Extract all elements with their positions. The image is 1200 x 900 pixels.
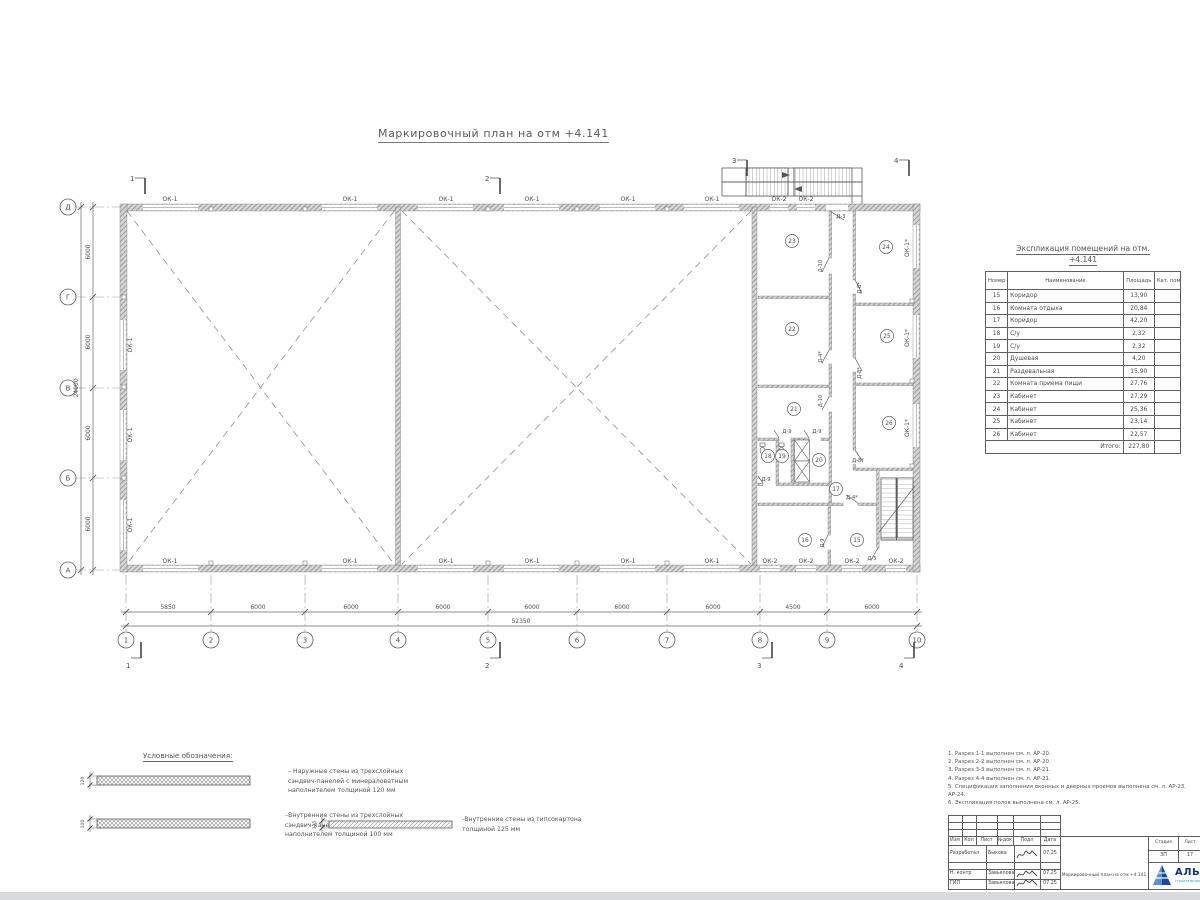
dim-label: 6000 xyxy=(85,244,92,259)
company-brand-name: АЛЬЯНС xyxy=(1175,867,1200,878)
tb-col-header: Лист xyxy=(976,838,997,843)
explication-table: Экспликация помещений на отм. +4.141 Ном… xyxy=(985,243,1181,454)
dim-label: 6000 xyxy=(85,334,92,349)
dim-label: 6000 xyxy=(85,425,92,440)
hall-diagonals xyxy=(127,211,751,564)
total-label: Итого: xyxy=(986,441,1124,454)
table-row: 24Кабинет25,36 xyxy=(986,403,1181,416)
window-label: ОК-1 xyxy=(127,337,134,352)
section-marker-label: 4 xyxy=(894,157,899,165)
room-number: 21 xyxy=(790,407,798,413)
axis-bubbles xyxy=(60,199,925,648)
col-header: Наименование xyxy=(1008,272,1124,290)
room-number: 26 xyxy=(885,421,893,427)
window-label: ОК-1 xyxy=(525,558,540,565)
window-label: ОК-1 xyxy=(621,196,636,203)
note-line: 5. Спецификация заполнения оконных и две… xyxy=(948,783,1200,799)
tb-date: 07.25 xyxy=(1040,851,1060,856)
tb-doc-title: Маркировочный план на отм +4.141 xyxy=(1060,873,1148,878)
tb-col-header: Дата xyxy=(1040,838,1060,843)
door-label: Д-4* xyxy=(818,351,824,363)
signature xyxy=(1016,848,1038,861)
dim-label: 6000 xyxy=(250,604,265,611)
table-header-row: Номер помещ. Наименование Площадь Кат. п… xyxy=(986,272,1181,290)
door-label: Д-8* xyxy=(857,282,863,294)
dim-label: 6000 xyxy=(343,604,358,611)
room-number: 17 xyxy=(832,487,840,493)
section-marker-label: 3 xyxy=(757,662,761,670)
door-label: Д-10 xyxy=(818,395,824,408)
axis-row-label: Д xyxy=(65,204,71,212)
legend-title: Условные обозначения: xyxy=(143,751,233,762)
tb-stage-label: Стадия xyxy=(1149,840,1178,845)
table-row: 19С/у2,32 xyxy=(986,340,1181,353)
dim-label: 6000 xyxy=(435,604,450,611)
window-label: ОК-2 xyxy=(799,196,814,203)
legend-dim-label: 125 xyxy=(312,821,318,830)
tb-role: Н. контр xyxy=(949,871,987,876)
axis-col-label: 4 xyxy=(396,637,401,645)
tb-role: Разработал xyxy=(949,851,987,856)
door-label: Д-9 xyxy=(820,538,826,547)
dim-label: 5850 xyxy=(160,604,175,611)
window-label: ОК-1 xyxy=(621,558,636,565)
axis-col-label: 7 xyxy=(665,637,669,645)
room-number: 16 xyxy=(801,538,809,544)
signature xyxy=(1016,878,1038,889)
door-label: Д-5 xyxy=(867,556,876,562)
axis-row-label: Б xyxy=(66,475,71,483)
dim-label: 6000 xyxy=(705,604,720,611)
tb-name: Завьялова xyxy=(987,881,1015,886)
tb-name: Завьялова xyxy=(987,871,1015,876)
window-label: ОК-2 xyxy=(772,196,787,203)
tb-date: 07.25 xyxy=(1040,881,1060,886)
door-label: Д-3 xyxy=(836,214,845,220)
axis-row-label: А xyxy=(66,567,71,575)
section-marker-label: 4 xyxy=(899,662,904,670)
window-label: ОК-1 xyxy=(127,517,134,532)
door-label: Д-10 xyxy=(818,260,824,273)
dim-label: 6000 xyxy=(85,516,92,531)
window-label: ОК-2 xyxy=(845,558,860,565)
col-header: Площадь xyxy=(1123,272,1154,290)
tb-sheet-value: 17 xyxy=(1179,853,1200,858)
door-label: Д-8* xyxy=(852,458,864,464)
door-label: Д-9 xyxy=(782,429,791,435)
window-label: ОК-2 xyxy=(889,558,904,565)
tb-col-header: Подп xyxy=(1014,838,1040,843)
page-bottom-strip xyxy=(0,892,1200,900)
table-row: 15Коридор13,90 xyxy=(986,290,1181,303)
dim-label: 4500 xyxy=(785,604,800,611)
door-label: Д-9 xyxy=(761,477,770,483)
dim-label: 6000 xyxy=(864,604,879,611)
tb-col-header: Кол xyxy=(962,838,976,843)
notes-list: 1. Разрез 1-1 выполнен см. л. АР-20. 2. … xyxy=(948,750,1200,807)
door-labels: Д-3 Д-10 Д-10 Д-4* Д-4* Д-8* Д-8* Д-8* Д… xyxy=(761,214,876,562)
window-label: ОК-1 xyxy=(127,427,134,442)
window-label: ОК-1 xyxy=(343,196,358,203)
legend-item-text: -Внутренние стены из гипсокартона толщин… xyxy=(462,815,582,834)
col-header: Кат. пом. xyxy=(1154,272,1180,290)
drawing-sheet: { "title": "Маркировочный план на отм +4… xyxy=(0,0,1200,900)
axis-col-label: 8 xyxy=(758,637,762,645)
axis-labels: Д Г В Б А 1 2 3 4 5 6 7 8 9 10 xyxy=(65,204,921,645)
tb-date: 07.25 xyxy=(1040,871,1060,876)
note-line: 4. Разрез 4-4 выполнен см. л. АР-21. xyxy=(948,775,1200,783)
axis-row-label: Г xyxy=(66,294,70,302)
tb-col-header: Изм xyxy=(948,838,962,843)
table-row: 21Раздевальная15,90 xyxy=(986,365,1181,378)
room-number: 15 xyxy=(853,538,861,544)
note-line: 1. Разрез 1-1 выполнен см. л. АР-20. xyxy=(948,750,1200,758)
door-label: Д-9 xyxy=(812,429,821,435)
axis-row-label: В xyxy=(66,385,71,393)
axis-col-label: 2 xyxy=(209,637,213,645)
room-numbers: 15 16 17 18 19 20 21 22 23 24 25 26 xyxy=(762,235,896,547)
dim-total-label: 52350 xyxy=(511,618,530,625)
room-number: 19 xyxy=(778,454,786,460)
window-openings xyxy=(120,205,918,571)
stairwell xyxy=(879,478,915,540)
window-label: ОК-1* xyxy=(904,329,911,347)
axis-col-label: 3 xyxy=(303,637,307,645)
tb-stage-value: ЗП xyxy=(1149,853,1178,858)
explication-title: Экспликация помещений на отм. +4.141 xyxy=(985,243,1181,265)
axis-col-label: 5 xyxy=(486,637,490,645)
legend-dim-label: 120 xyxy=(80,777,86,786)
axis-col-label: 1 xyxy=(124,637,128,645)
tb-sheet-label: Лист xyxy=(1179,840,1200,845)
legend-dim-label: 100 xyxy=(80,820,86,829)
col-header: Номер помещ. xyxy=(986,272,1008,290)
legend-symbol-outer-wall: 120 xyxy=(78,770,256,794)
tb-role: ГИП xyxy=(949,881,987,886)
table-row: 22Комната приема пищи27,76 xyxy=(986,378,1181,391)
window-label: ОК-1 xyxy=(343,558,358,565)
tb-col-header: №док xyxy=(997,838,1013,843)
table-row: 26Кабинет22,57 xyxy=(986,428,1181,441)
room-number: 18 xyxy=(764,454,772,460)
section-marker-label: 1 xyxy=(130,175,134,183)
tb-name: Быкова xyxy=(987,851,1015,856)
room-number: 22 xyxy=(788,327,796,333)
window-labels: ОК-1 ОК-1 ОК-1 ОК-1 ОК-1 ОК-1 ОК-2 ОК-2 … xyxy=(127,196,911,565)
floor-plan: 5850 6000 6000 6000 6000 6000 6000 4500 … xyxy=(40,120,940,680)
note-line: 2. Разрез 2-2 выполнен см. л. АР-20. xyxy=(948,758,1200,766)
table-row: 18С/у2,32 xyxy=(986,327,1181,340)
legend-symbol-inner-wall: 100 xyxy=(78,813,256,837)
window-label: ОК-1 xyxy=(525,196,540,203)
company-logo-icon xyxy=(1153,865,1171,885)
window-label: ОК-1 xyxy=(705,558,720,565)
dim-label: 6000 xyxy=(614,604,629,611)
window-label: ОК-2 xyxy=(763,558,778,565)
note-line: 3. Разрез 3-3 выполнен см. л. АР-21. xyxy=(948,766,1200,774)
room-number: 23 xyxy=(788,239,796,245)
table-row: 23Кабинет27,29 xyxy=(986,390,1181,403)
axis-col-label: 9 xyxy=(825,637,829,645)
room-number: 20 xyxy=(815,458,823,464)
total-value: 227,80 xyxy=(1123,441,1154,454)
dim-label: 6000 xyxy=(524,604,539,611)
window-label: ОК-1 xyxy=(163,196,178,203)
table-total-row: Итого:227,80 xyxy=(986,441,1181,454)
section-marker-label: 3 xyxy=(732,157,736,165)
table-row: 25Кабинет23,14 xyxy=(986,415,1181,428)
table-row: 16Комната отдыха20,84 xyxy=(986,302,1181,315)
window-label: ОК-1* xyxy=(904,239,911,257)
legend-item-text: – Наружные стены из трехслойных сэндвич-… xyxy=(288,767,408,796)
door-label: Д-8* xyxy=(857,367,863,379)
window-label: ОК-2 xyxy=(799,558,814,565)
section-marker-label: 2 xyxy=(485,662,489,670)
window-label: ОК-1 xyxy=(439,196,454,203)
external-stair xyxy=(722,168,862,204)
window-label: ОК-1 xyxy=(439,558,454,565)
section-marker-label: 1 xyxy=(126,662,130,670)
company-brand-subtitle: строительная компания xyxy=(1175,879,1200,883)
room-number: 25 xyxy=(883,334,891,340)
table-row: 20Душевая4,20 xyxy=(986,352,1181,365)
window-label: ОК-1* xyxy=(904,419,911,437)
window-label: ОК-1 xyxy=(163,558,178,565)
room-number: 24 xyxy=(882,245,890,251)
section-marker-label: 2 xyxy=(485,175,489,183)
window-label: ОК-1 xyxy=(705,196,720,203)
walls xyxy=(120,204,920,572)
door-label: Д-4* xyxy=(846,495,858,501)
title-block: Изм Кол Лист №док Подп Дата Разработал Б… xyxy=(948,815,1200,891)
dim-total-label: 24000 xyxy=(73,378,80,397)
table-row: 17Коридор42,20 xyxy=(986,315,1181,328)
legend-symbol-gypsum-wall: 125 xyxy=(310,814,458,838)
note-line: 6. Экспликация полов выполнена см. л. АР… xyxy=(948,799,1200,807)
axis-col-label: 6 xyxy=(575,637,580,645)
